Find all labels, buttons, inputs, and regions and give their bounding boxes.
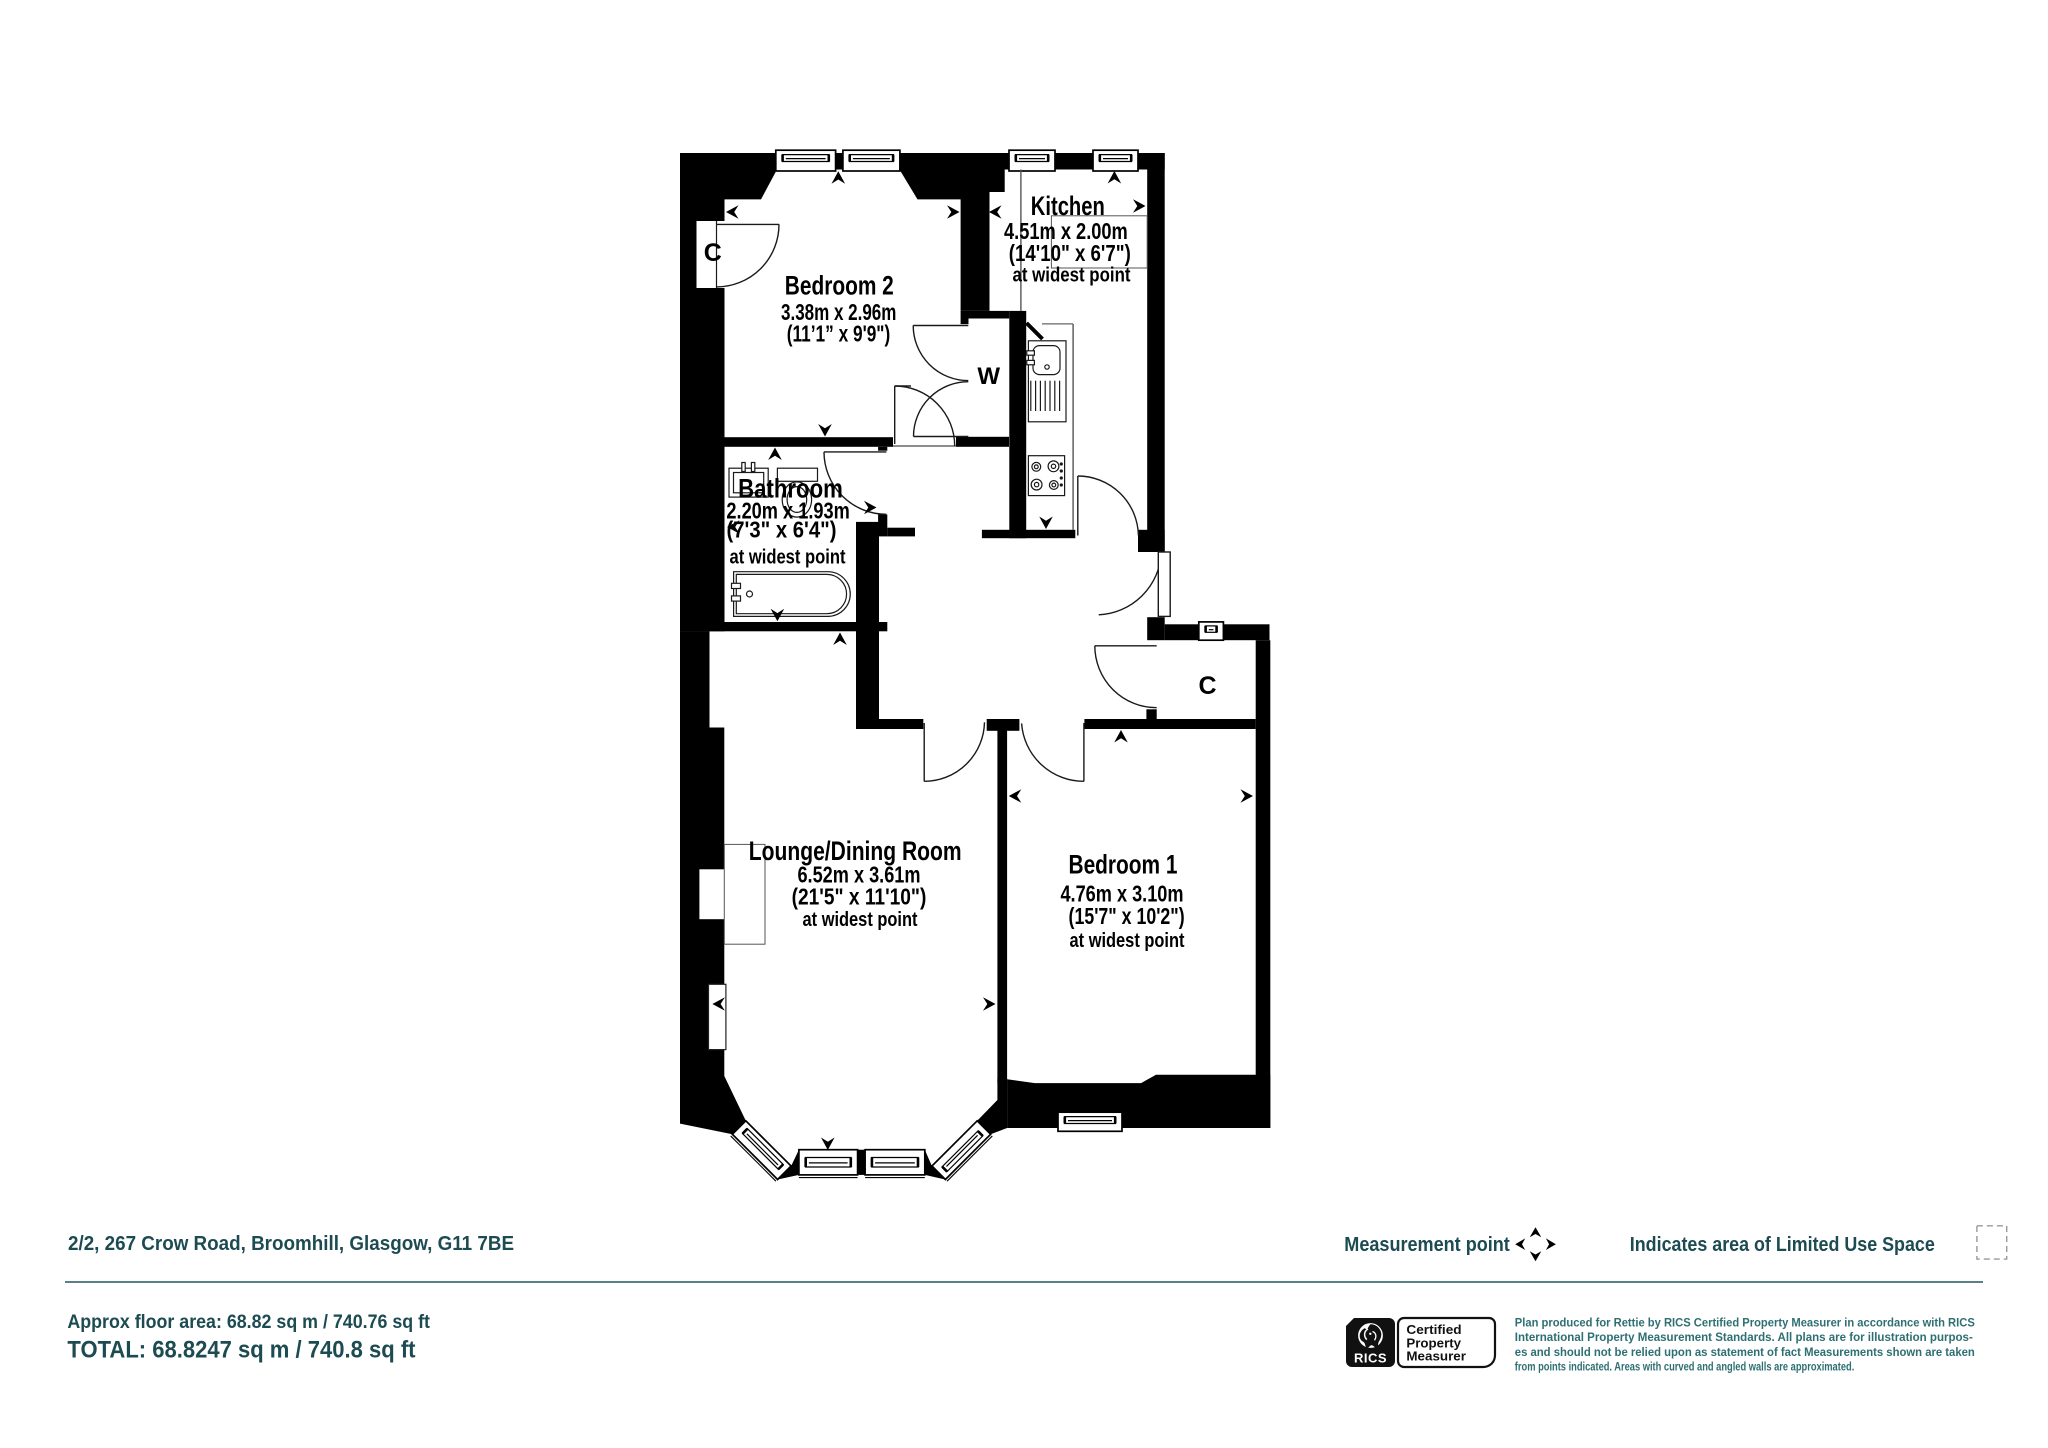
svg-text:TOTAL: 68.8247 sq m / 740.8 sq: TOTAL: 68.8247 sq m / 740.8 sq ft xyxy=(67,1337,415,1364)
svg-text:(21'5" x 11'10"): (21'5" x 11'10") xyxy=(792,883,927,909)
svg-text:International Property Measur: International Property Measurement Stand… xyxy=(1515,1330,1973,1344)
svg-text:Indicates area of Limited Use: Indicates area of Limited Use Space xyxy=(1630,1234,1935,1256)
svg-text:from points indicated. Areas w: from points indicated. Areas with curved… xyxy=(1515,1360,1855,1374)
svg-text:(11’1” x 9'9"): (11’1” x 9'9") xyxy=(787,321,891,347)
svg-text:es and should not be relied up: es and should not be relied upon as stat… xyxy=(1515,1345,1975,1359)
svg-text:Certified: Certified xyxy=(1406,1323,1461,1337)
svg-text:(7'3" x 6'4"): (7'3" x 6'4") xyxy=(727,517,837,543)
svg-text:at widest point: at widest point xyxy=(803,908,918,931)
svg-text:at widest point: at widest point xyxy=(730,545,846,568)
svg-text:at widest point: at widest point xyxy=(1013,264,1131,287)
svg-text:C: C xyxy=(704,239,722,267)
svg-text:2/2, 267 Crow Road, Broomhill,: 2/2, 267 Crow Road, Broomhill, Glasgow, … xyxy=(68,1232,514,1255)
svg-text:Kitchen: Kitchen xyxy=(1031,191,1105,221)
svg-text:Bedroom 2: Bedroom 2 xyxy=(785,271,894,301)
svg-text:C: C xyxy=(1198,672,1216,700)
svg-text:(14'10" x 6'7"): (14'10" x 6'7") xyxy=(1009,240,1131,266)
svg-text:Property: Property xyxy=(1406,1336,1461,1350)
svg-text:(15'7" x 10'2"): (15'7" x 10'2") xyxy=(1069,903,1185,929)
svg-text:at widest point: at widest point xyxy=(1070,929,1185,952)
svg-text:Measurer: Measurer xyxy=(1406,1350,1466,1364)
svg-text:Approx floor area: 68.82 sq m: Approx floor area: 68.82 sq m / 740.76 s… xyxy=(67,1311,430,1333)
svg-text:RICS: RICS xyxy=(1354,1351,1387,1366)
svg-text:W: W xyxy=(977,363,1000,390)
svg-text:Plan produced for Rettie by RI: Plan produced for Rettie by RICS Certifi… xyxy=(1515,1316,1975,1330)
svg-text:Measurement point: Measurement point xyxy=(1344,1234,1510,1256)
svg-text:Bedroom 1: Bedroom 1 xyxy=(1069,849,1178,879)
